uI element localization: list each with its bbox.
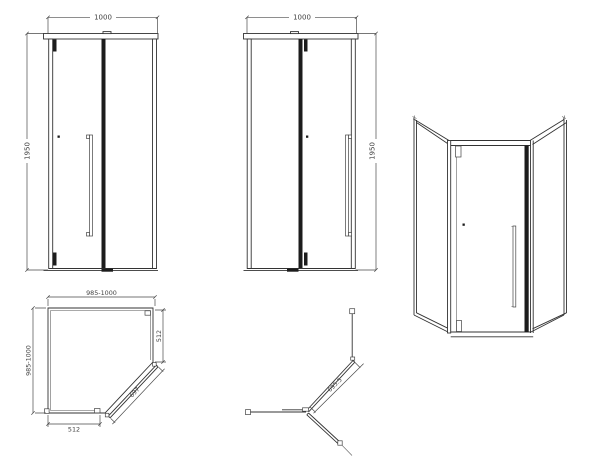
drawing-canvas: 1000 1950 (0, 0, 612, 462)
swing-tail-line (342, 445, 352, 455)
enclosure-frame (44, 32, 159, 272)
dimension-plan-right-side: 512 (155, 308, 166, 363)
right-wall-profile (351, 39, 355, 269)
wall-line-left (246, 408, 309, 415)
door-handle (511, 226, 515, 307)
front-door-assembly (448, 141, 534, 337)
door-handle (87, 135, 93, 236)
dim-label-plan-width: 985-1000 (86, 289, 117, 297)
dimension-width-top: 1000 (245, 14, 358, 33)
door-hinge-plan-top (153, 363, 157, 367)
corner-post-left (448, 141, 451, 334)
dim-label-width: 1000 (94, 14, 112, 22)
door-hinge-plan-bottom (105, 413, 109, 417)
dim-label-height: 1950 (369, 142, 377, 160)
front-elevation-door-left: 1000 1950 (24, 14, 160, 272)
bottom-guide (287, 269, 299, 272)
dim-label-plan-right-side: 512 (155, 330, 163, 342)
dimension-door-width: 695.5 (310, 362, 364, 413)
dim-label-plan-depth: 985-1000 (25, 345, 33, 376)
top-rail (44, 34, 159, 40)
door-end-cap (338, 441, 342, 445)
dimension-plan-depth: 985-1000 (25, 306, 47, 414)
dim-label-height: 1950 (24, 142, 32, 160)
dimension-height-right: 1950 (356, 32, 378, 272)
door-top-bracket (351, 357, 355, 360)
hinge-top (456, 146, 462, 157)
hinge-top (304, 40, 308, 52)
top-rail-tab (103, 32, 111, 34)
top-rail-tab (291, 32, 299, 34)
dimension-width-top: 1000 (46, 14, 159, 33)
dim-label-width: 1000 (293, 14, 311, 22)
knob-dot (463, 224, 465, 226)
bottom-guide (102, 269, 114, 272)
door-stile (525, 146, 529, 333)
hinge-bottom (457, 321, 462, 332)
plan-view: 985-1000 985-1000 512 512 697 (25, 289, 167, 434)
dim-label-plan-bottom-side: 512 (68, 426, 80, 434)
pentagon-outline (45, 308, 154, 413)
knob-dot (306, 136, 308, 138)
door-stile (299, 39, 303, 269)
side-panel-right (530, 116, 567, 333)
left-wall-profile (49, 39, 53, 269)
top-rail (451, 141, 531, 146)
bottom-rail (451, 332, 534, 337)
bottom-sill (44, 269, 159, 271)
door-swing-detail: 695.5 (246, 309, 364, 456)
dim-label-door-width: 695.5 (327, 376, 344, 393)
top-rail (244, 34, 359, 40)
corner-hinge-bracket (303, 408, 309, 411)
enclosure-frame (244, 32, 359, 272)
knob-dot (58, 136, 60, 138)
threshold-bracket (95, 409, 101, 413)
hinge-bottom (304, 253, 308, 266)
front-elevation-door-right: 1000 1950 (244, 14, 378, 272)
wall-line-vertical (350, 309, 355, 358)
dim-label-plan-diagonal: 697 (128, 386, 141, 399)
hinge-top (53, 40, 57, 52)
dimension-plan-diagonal: 697 (111, 367, 165, 424)
corner-bracket-top-right (145, 311, 151, 315)
dimension-height-left: 1950 (24, 32, 49, 272)
door-stile (102, 39, 106, 269)
hinge-bottom (53, 253, 57, 266)
dimension-plan-width: 985-1000 (46, 289, 156, 306)
left-wall-profile (247, 39, 251, 269)
technical-drawing-sheet: 1000 1950 (0, 0, 612, 462)
door-handle (346, 135, 352, 236)
side-panel-left (413, 116, 450, 333)
right-wall-profile (153, 39, 157, 269)
door-open-position (307, 413, 352, 456)
bottom-sill (244, 269, 359, 271)
dimension-plan-bottom-side: 512 (46, 415, 101, 434)
perspective-view (413, 116, 567, 337)
corner-post-right (531, 141, 534, 334)
